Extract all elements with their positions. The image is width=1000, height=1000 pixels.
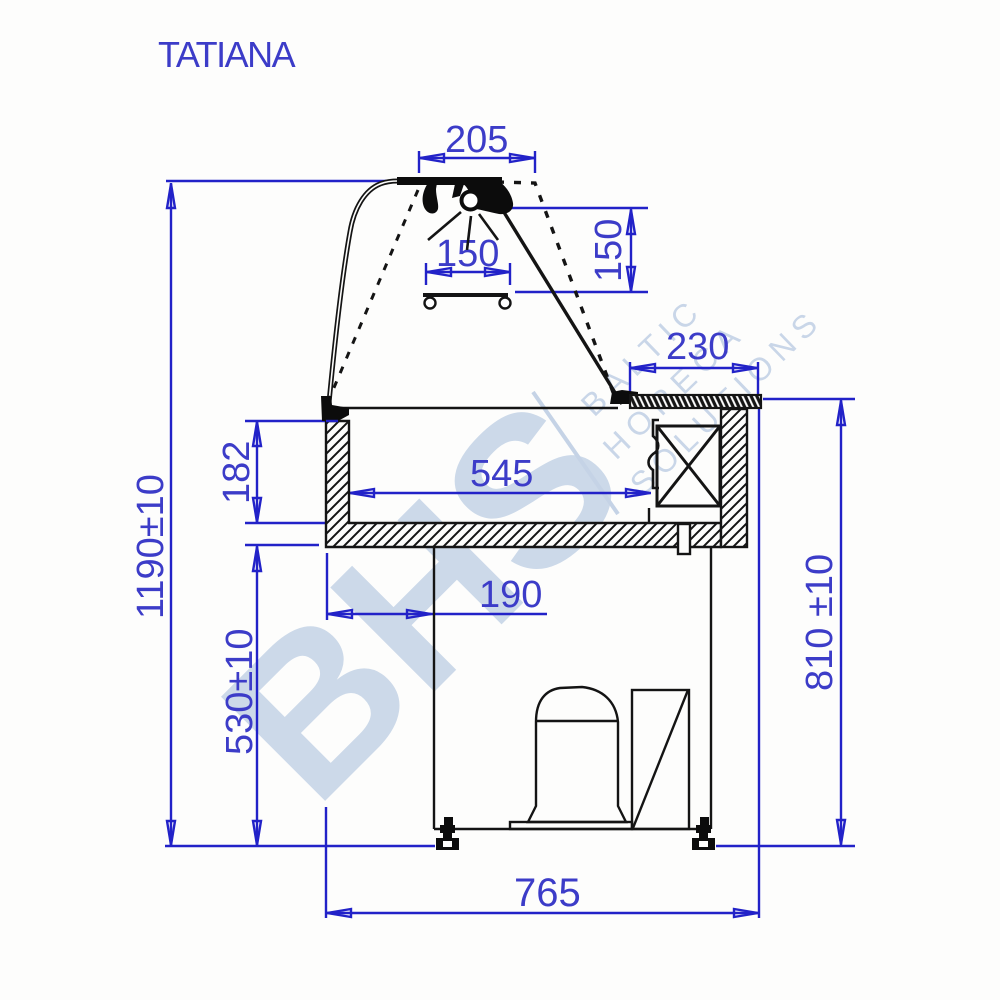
svg-text:150: 150 (588, 219, 630, 282)
svg-text:190: 190 (479, 574, 542, 616)
svg-text:1190±10: 1190±10 (130, 474, 172, 619)
svg-text:205: 205 (445, 119, 508, 161)
svg-text:545: 545 (470, 453, 533, 495)
svg-text:765: 765 (514, 871, 581, 915)
svg-text:TATIANA: TATIANA (158, 34, 296, 75)
svg-text:230: 230 (666, 326, 729, 368)
svg-text:BHS: BHS (179, 355, 667, 843)
svg-text:530±10: 530±10 (219, 628, 261, 755)
svg-text:182: 182 (216, 441, 258, 504)
svg-text:810 ±10: 810 ±10 (799, 554, 841, 691)
